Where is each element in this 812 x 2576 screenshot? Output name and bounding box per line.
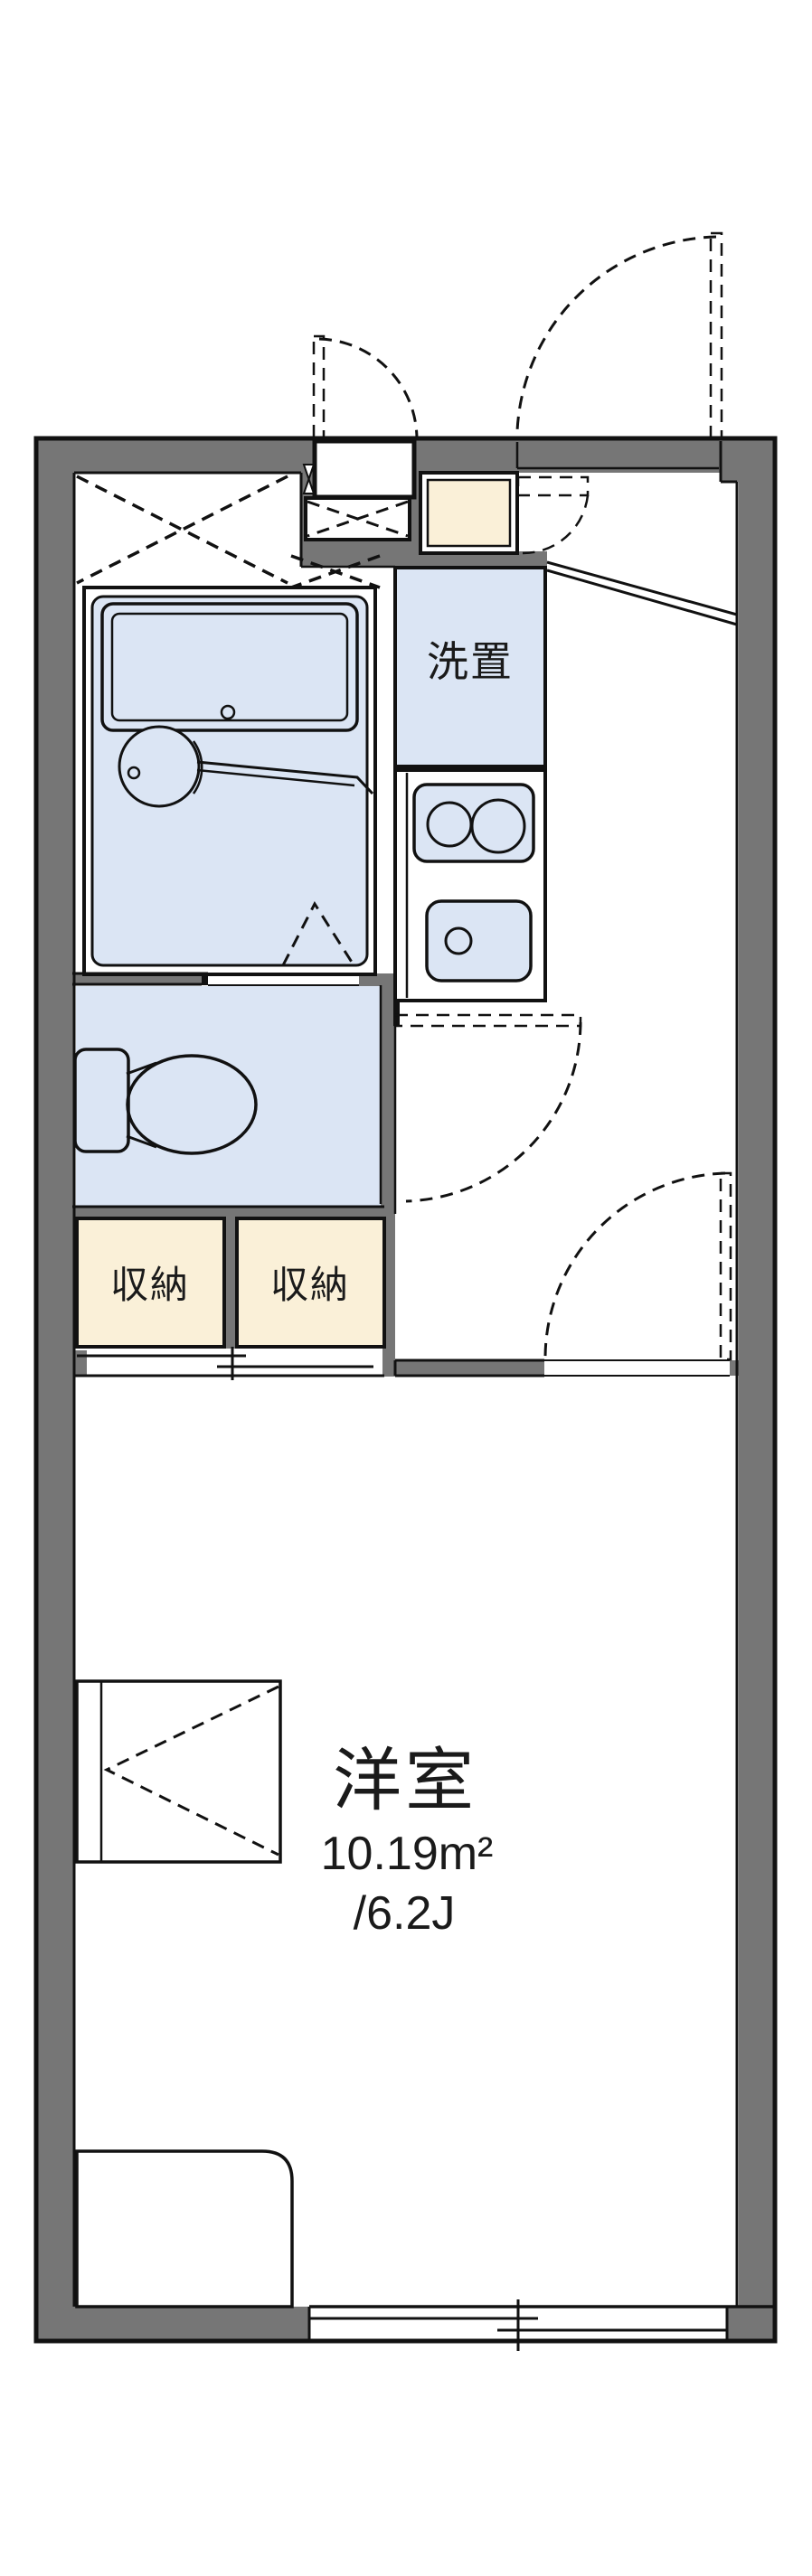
interior-door-swings bbox=[395, 1015, 731, 1359]
shoe-cabinet-inner bbox=[428, 480, 510, 546]
wall-segment-right bbox=[739, 438, 775, 2341]
floor-plan-page: 洗置 収納 収納 洋室 10.19m² /6.2J bbox=[0, 0, 812, 2576]
wall-segment-bottom-left bbox=[36, 2307, 309, 2341]
bed bbox=[77, 2151, 292, 2307]
stove-top bbox=[414, 785, 533, 861]
entrance-door-arc bbox=[517, 237, 716, 431]
closet-left-label: 収納 bbox=[110, 1264, 190, 1306]
closet-right-label: 収納 bbox=[270, 1264, 350, 1306]
exterior-storage-doorway bbox=[315, 441, 414, 497]
toilet-wall-cap bbox=[202, 973, 208, 985]
genkan-step-line-1 bbox=[547, 562, 737, 615]
entrance-door-leaf bbox=[711, 233, 722, 439]
shoe-cabinet bbox=[420, 473, 588, 553]
bath-basin-drain bbox=[128, 767, 139, 778]
wall-segment-bottom-right bbox=[727, 2307, 775, 2341]
bathroom-cabinet-x-1 bbox=[77, 476, 288, 583]
storage-door-arc bbox=[319, 339, 417, 439]
genkan-step-line-2 bbox=[547, 570, 737, 625]
washer-label: 洗置 bbox=[427, 638, 514, 685]
main-room-label: 洋室 bbox=[333, 1743, 477, 1819]
main-room bbox=[77, 1681, 292, 2307]
storage-door-leaf bbox=[314, 336, 324, 439]
entrance-nook bbox=[304, 441, 414, 540]
wall-segment-right-top-block bbox=[721, 438, 775, 482]
floor-plan-svg: 洗置 収納 収納 洋室 10.19m² /6.2J bbox=[0, 0, 812, 2576]
washroom-door-leaf bbox=[395, 1015, 581, 1026]
wall-hall-room-stub bbox=[730, 1360, 741, 1376]
toilet-room bbox=[72, 973, 395, 1214]
bathtub-drain bbox=[222, 706, 234, 719]
room-door-leaf bbox=[721, 1173, 731, 1359]
kitchen-column bbox=[393, 568, 545, 1026]
wall-toilet-right bbox=[381, 973, 395, 1214]
main-room-area-m2: 10.19m² bbox=[321, 1828, 494, 1880]
room-door-arc bbox=[545, 1173, 725, 1359]
wall-segment-left bbox=[36, 438, 74, 2341]
wall-hall-room bbox=[395, 1360, 544, 1376]
shoe-cabinet-door-leaf bbox=[518, 477, 588, 495]
wall-closet-divider bbox=[224, 1218, 237, 1349]
kitchen-sink bbox=[427, 901, 531, 981]
toilet-floor bbox=[76, 986, 381, 1207]
bath-basin bbox=[119, 727, 199, 806]
wall-closet-left-stub bbox=[74, 1350, 87, 1376]
bathroom-cabinet-x-2 bbox=[77, 476, 288, 583]
exterior-door-swings bbox=[314, 233, 722, 439]
shoe-cabinet-door-arc bbox=[523, 495, 588, 553]
washroom-door-arc bbox=[406, 1022, 581, 1201]
main-room-area-tatami: /6.2J bbox=[354, 1887, 456, 1940]
